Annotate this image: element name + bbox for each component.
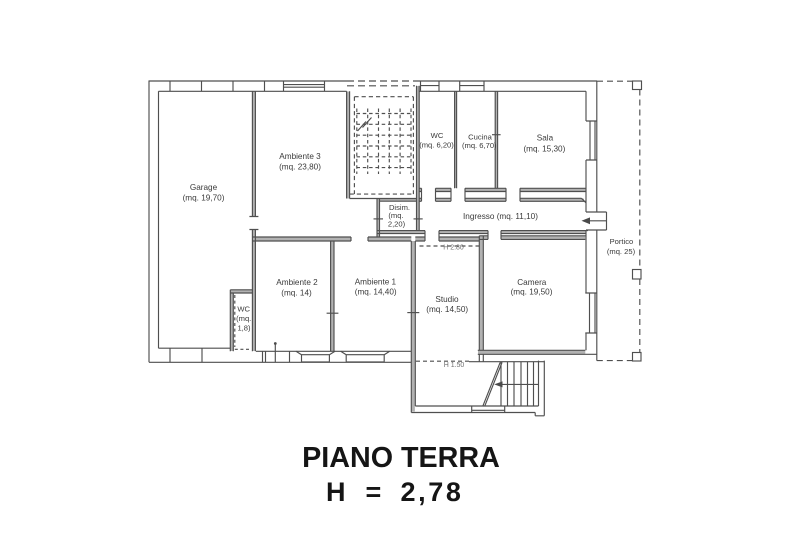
svg-text:Ambiente 3: Ambiente 3 — [279, 152, 321, 161]
svg-text:Portico: Portico — [610, 237, 634, 246]
svg-text:(mq. 25): (mq. 25) — [607, 247, 636, 256]
svg-text:(mq. 23,80): (mq. 23,80) — [279, 163, 321, 172]
svg-text:Ambiente 1: Ambiente 1 — [355, 278, 397, 287]
svg-text:Studio: Studio — [435, 295, 459, 304]
svg-text:H 2.80: H 2.80 — [443, 245, 464, 252]
svg-text:Sala: Sala — [537, 134, 554, 143]
svg-text:(mq. 14): (mq. 14) — [281, 288, 312, 297]
svg-text:WC: WC — [431, 131, 444, 140]
svg-text:(mq. 14,50): (mq. 14,50) — [426, 305, 468, 314]
svg-text:H 1.50: H 1.50 — [444, 362, 465, 369]
svg-text:(mq. 19,50): (mq. 19,50) — [511, 288, 553, 297]
svg-text:Cucina: Cucina — [468, 132, 492, 141]
svg-text:Camera: Camera — [517, 278, 547, 287]
svg-text:Ingresso (mq. 11,10): Ingresso (mq. 11,10) — [463, 212, 538, 221]
svg-text:Garage: Garage — [190, 183, 218, 192]
svg-text:(mq. 19,70): (mq. 19,70) — [183, 194, 225, 203]
svg-text:(mq. 14,40): (mq. 14,40) — [355, 288, 397, 297]
svg-text:(mq. 15,30): (mq. 15,30) — [523, 144, 565, 153]
svg-text:2,20): 2,20) — [388, 220, 406, 229]
svg-text:(mq. 6,20): (mq. 6,20) — [419, 140, 454, 149]
svg-text:PIANO TERRA: PIANO TERRA — [302, 442, 500, 474]
svg-text:1,8): 1,8) — [237, 323, 251, 332]
svg-text:WC: WC — [237, 304, 250, 313]
svg-text:(mq. 6,70): (mq. 6,70) — [462, 141, 497, 150]
svg-text:Ambiente 2: Ambiente 2 — [276, 278, 318, 287]
svg-text:(mq.: (mq. — [236, 314, 251, 323]
